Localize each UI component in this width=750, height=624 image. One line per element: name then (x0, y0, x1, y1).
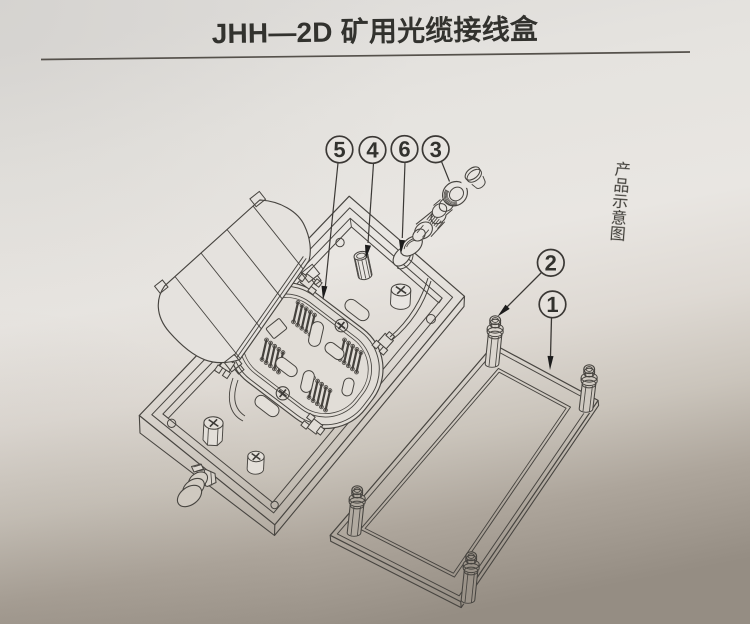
svg-text:1: 1 (546, 292, 558, 317)
svg-text:4: 4 (366, 138, 379, 163)
svg-text:JHH—2D 矿用光缆接线盒: JHH—2D 矿用光缆接线盒 (212, 14, 540, 50)
svg-text:5: 5 (333, 137, 345, 162)
svg-text:6: 6 (398, 137, 410, 162)
svg-text:2: 2 (545, 250, 557, 275)
svg-text:图: 图 (609, 226, 626, 244)
svg-text:3: 3 (430, 137, 442, 162)
